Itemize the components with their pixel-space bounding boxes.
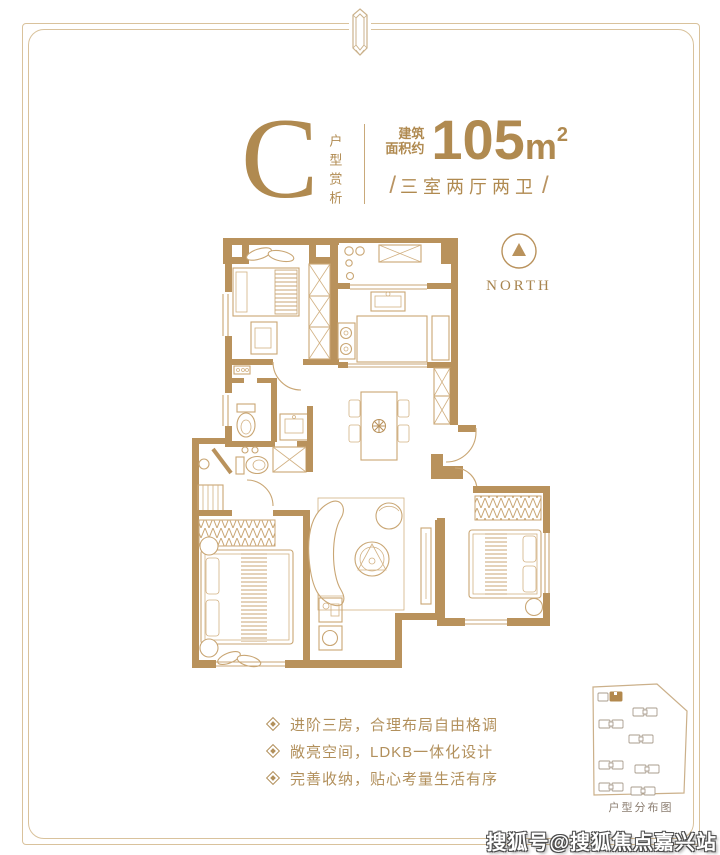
header: C 户型赏析 建筑 面积约 105m2 / 三室两厅两卫 / <box>241 112 568 210</box>
bedroom2 <box>437 486 550 626</box>
header-divider <box>364 124 365 204</box>
slash-right: / <box>542 172 549 200</box>
feature-list: 进阶三房，合理布局自由格调 敞亮空间，LDKB一体化设计 完善收纳，贴心考量生活… <box>268 716 498 797</box>
area-number: 105 <box>431 108 524 171</box>
site-plan-caption: 户型分布图 <box>585 799 697 815</box>
area-prefix: 建筑 面积约 <box>385 126 424 156</box>
gem-ornament-icon <box>349 8 371 56</box>
duct-shaft <box>309 264 330 359</box>
living-room <box>309 498 444 668</box>
layout-line: / 三室两厅两卫 / <box>385 172 568 200</box>
unit-label: 户型赏析 <box>325 134 344 210</box>
dining-area <box>349 392 409 460</box>
watermark: 搜狐号@搜狐焦点嘉兴站 <box>486 826 717 855</box>
feature-text: 完善收纳，贴心考量生活有序 <box>290 768 498 789</box>
feature-item: 完善收纳，贴心考量生活有序 <box>268 770 498 786</box>
area-prefix-line2: 面积约 <box>385 141 424 156</box>
floor-plan <box>185 228 560 678</box>
diamond-bullet-icon <box>266 744 280 758</box>
feature-text: 敞亮空间，LDKB一体化设计 <box>290 741 493 762</box>
area-unit: m <box>525 126 557 167</box>
diamond-bullet-icon <box>266 771 280 785</box>
entry-area <box>431 368 477 490</box>
floorplan-poster: C 户型赏析 建筑 面积约 105m2 / 三室两厅两卫 / NORTH <box>0 0 720 855</box>
feature-item: 进阶三房，合理布局自由格调 <box>268 716 498 732</box>
unit-letter: C <box>241 112 318 207</box>
master-bedroom <box>192 510 310 669</box>
slash-left: / <box>389 172 396 200</box>
layout-text: 三室两厅两卫 <box>400 173 538 199</box>
area-prefix-line1: 建筑 <box>385 126 424 141</box>
area-block: 建筑 面积约 105m2 / 三室两厅两卫 / <box>385 112 568 200</box>
area-value: 105m2 <box>431 114 568 166</box>
area-superscript: 2 <box>557 124 568 146</box>
site-plan-map <box>585 682 697 800</box>
diamond-bullet-icon <box>266 717 280 731</box>
feature-text: 进阶三房，合理布局自由格调 <box>290 714 498 735</box>
feature-item: 敞亮空间，LDKB一体化设计 <box>268 743 498 759</box>
bathrooms <box>192 365 313 516</box>
centerpiece <box>372 419 386 433</box>
building-highlighted <box>598 692 622 701</box>
